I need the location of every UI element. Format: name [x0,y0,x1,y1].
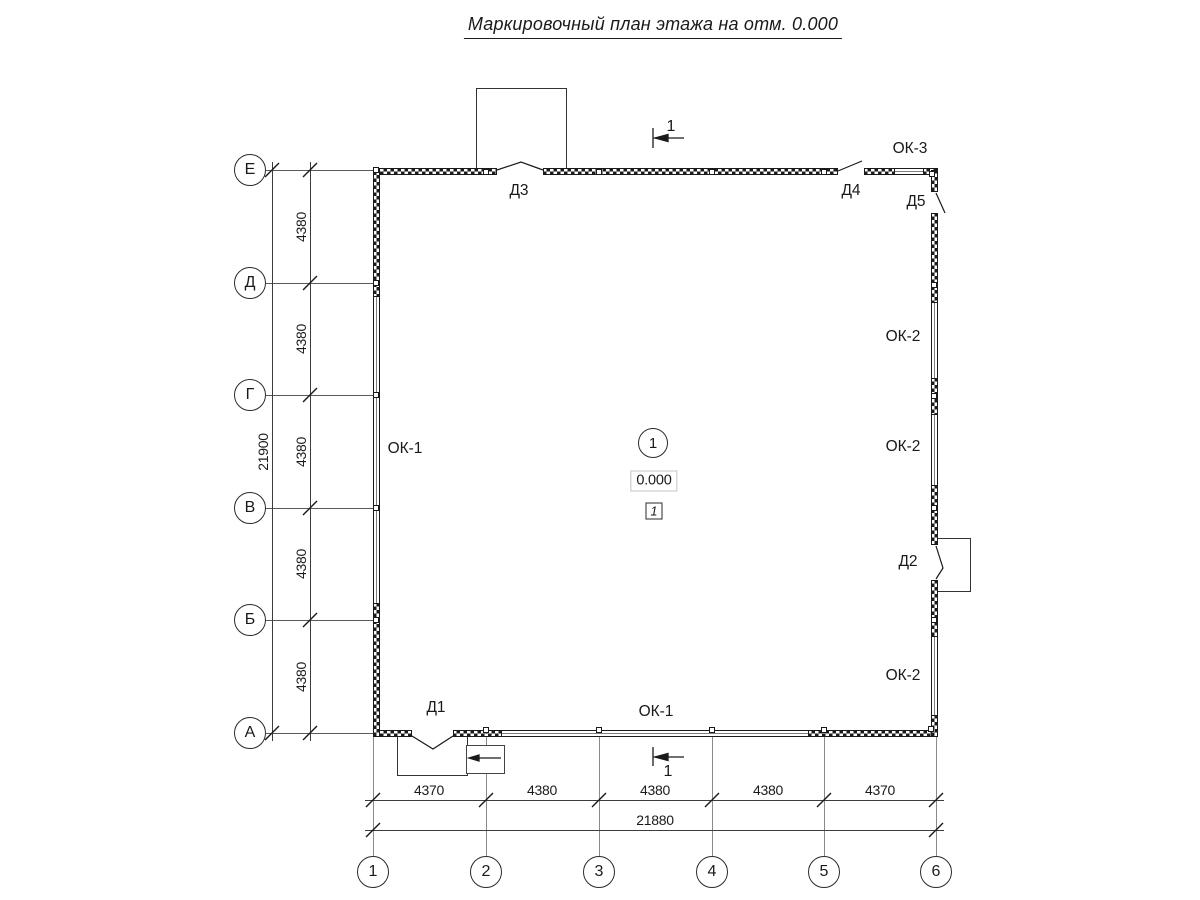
annotation-overlay [0,0,1200,900]
axis-line-row-b [266,620,380,621]
col-axis-circle-2: 2 [470,856,502,888]
left-total-dimension-line [272,162,273,741]
window-ok2-band [931,415,938,485]
axis-node-marker [931,617,937,623]
entrance-porch-bottom [397,737,468,776]
door-mark-d4: Д4 [841,182,860,200]
dim-label-left-total: 21900 [255,417,271,487]
section-number-top: 1 [667,118,676,136]
door-mark-d1: Д1 [426,699,445,717]
col-axis-circle-3: 3 [583,856,615,888]
window-mark-ok3: ОК-3 [893,140,928,158]
section-number-bottom: 1 [664,763,673,781]
row-axis-circle-g: Г [234,379,266,411]
dim-label-bottom-23: 4380 [507,782,577,798]
axis-node-marker [373,617,379,623]
row-axis-circle-a: А [234,717,266,749]
axis-line-row-d [266,283,380,284]
elevation-mark: 0.000 [630,471,677,492]
axis-node-marker [373,392,379,398]
col-axis-circle-6: 6 [920,856,952,888]
wall-left-segment [373,168,380,297]
dim-label-left-de: 4380 [293,192,309,262]
axis-node-marker [821,169,827,175]
door-swing-d5 [936,193,945,213]
wall-top-segment [373,168,497,175]
dim-label-left-gv: 4380 [293,417,309,487]
col-axis-circle-4: 4 [696,856,728,888]
axis-node-marker [928,726,934,732]
axis-node-marker [596,727,602,733]
dim-label-left-ba: 4380 [293,642,309,712]
axis-line-col-4 [712,737,713,856]
dim-label-bottom-34: 4380 [620,782,690,798]
window-mark-ok1-left: ОК-1 [388,440,423,458]
dim-label-left-dg: 4380 [293,304,309,374]
wall-right-segment [931,580,938,637]
wall-top-segment [543,168,838,175]
window-ok3-band [895,168,923,175]
axis-node-marker [596,169,602,175]
floor-plan-canvas: Маркировочный план этажа на отм. 0.000 Е… [0,0,1200,900]
window-mark-ok2-1: ОК-2 [886,328,921,346]
door-swing-d4 [838,161,862,171]
axis-line-col-1 [373,737,374,856]
axis-node-marker [373,280,379,286]
door-mark-d2: Д2 [898,553,917,571]
left-interval-dimension-line [310,162,311,741]
window-ok2-band [931,637,938,715]
entrance-vestibule-top [476,88,567,170]
axis-line-col-6 [936,737,937,856]
window-mark-ok2-3: ОК-2 [886,667,921,685]
entrance-steps-bottom [466,745,505,774]
axis-node-marker [373,505,379,511]
wall-top-segment [864,168,895,175]
row-axis-circle-b: Б [234,604,266,636]
window-mark-ok1-bottom: ОК-1 [639,703,674,721]
window-ok1-left-band [373,297,380,603]
window-ok1-bottom-band [502,730,808,737]
row-axis-circle-e: Е [234,154,266,186]
axis-node-marker [709,727,715,733]
wall-bottom-segment [808,730,938,737]
axis-line-row-v [266,508,380,509]
axis-node-marker [483,169,489,175]
wall-right-segment [931,485,938,545]
axis-line-row-g [266,395,380,396]
axis-node-marker [931,282,937,288]
axis-node-marker [483,727,489,733]
dim-label-bottom-45: 4380 [733,782,803,798]
axis-node-marker [821,727,827,733]
axis-node-marker [931,393,937,399]
window-mark-ok2-2: ОК-2 [886,438,921,456]
dim-label-bottom-12: 4370 [394,782,464,798]
bottom-total-dimension-line [365,830,944,831]
wall-bottom-segment [453,730,502,737]
window-ok2-band [931,303,938,378]
dim-label-left-vb: 4380 [293,529,309,599]
dim-label-bottom-total: 21880 [620,812,690,828]
axis-node-marker [373,167,379,173]
zone-number-box: 1 [646,503,663,520]
door-mark-d5: Д5 [906,193,925,211]
dim-label-bottom-56: 4370 [845,782,915,798]
axis-node-marker [929,171,935,177]
entrance-porch-right [938,538,971,592]
wall-left-segment [373,603,380,737]
axis-line-col-5 [824,737,825,856]
drawing-title: Маркировочный план этажа на отм. 0.000 [464,14,842,39]
row-axis-circle-d: Д [234,267,266,299]
door-mark-d3: Д3 [509,182,528,200]
room-number-circle: 1 [638,428,668,458]
wall-right-segment [931,213,938,303]
col-axis-circle-1: 1 [357,856,389,888]
row-axis-circle-v: В [234,492,266,524]
axis-line-col-3 [599,737,600,856]
axis-node-marker [931,505,937,511]
col-axis-circle-5: 5 [808,856,840,888]
axis-line-row-e [266,170,380,171]
axis-line-row-a [266,733,380,734]
axis-node-marker [709,169,715,175]
bottom-interval-dimension-line [365,800,944,801]
